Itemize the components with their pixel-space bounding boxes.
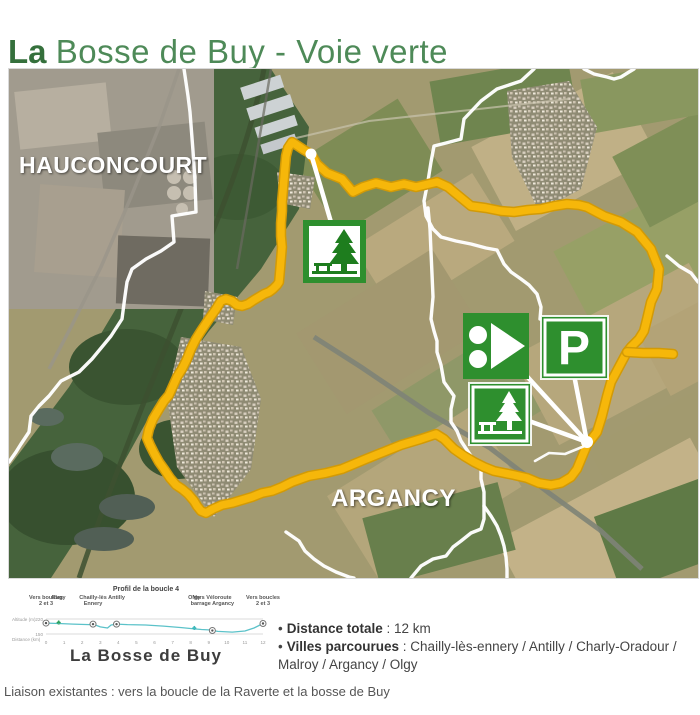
profile-xlabel: Distance (km)	[12, 637, 41, 642]
waypoint-label: Vers boucles 2 et 3	[235, 595, 291, 608]
distance-label: Distance totale	[287, 621, 383, 636]
industrial-zone	[9, 69, 214, 309]
profile-xtick: 6	[153, 640, 156, 645]
bullet-icon: •	[278, 639, 283, 654]
profile-xtick: 9	[208, 640, 211, 645]
picnic-area-icon	[305, 222, 365, 282]
page-title-prefix: La	[8, 33, 47, 70]
route-map-svg: HAUCONCOURT ARGANCY	[9, 69, 698, 578]
profile-xtick: 7	[171, 640, 174, 645]
lake	[74, 527, 134, 551]
profile-waypoint-labels: Vers boucles 2 et 3RugyChailly-lès Enner…	[10, 595, 282, 611]
waypoint-marker-dot	[45, 622, 47, 624]
profile-xtick: 12	[260, 640, 266, 645]
picnic-area-icon	[469, 383, 531, 445]
parking-icon: P	[541, 316, 608, 379]
page-root: LaBosse de Buy - Voie verte	[0, 0, 700, 715]
route-map-image: HAUCONCOURT ARGANCY	[8, 68, 699, 579]
profile-xtick: 1	[63, 640, 66, 645]
distance-value: : 12 km	[383, 621, 431, 636]
liaison-note: Liaison existantes : vers la boucle de l…	[4, 684, 390, 699]
profile-xtick: 0	[45, 640, 48, 645]
page-title: LaBosse de Buy - Voie verte	[8, 34, 448, 70]
villes-label: Villes parcourues	[287, 639, 399, 654]
profile-xtick: 10	[224, 640, 230, 645]
profile-xtick: 5	[135, 640, 138, 645]
page-title-rest: Bosse de Buy - Voie verte	[56, 33, 448, 70]
detail-villes: •Villes parcourues : Chailly-lès-ennery …	[278, 638, 694, 674]
waypoint-label: Antilly	[89, 595, 145, 601]
profile-xtick: 11	[243, 640, 248, 645]
tree-marker-icon: ♣	[56, 620, 61, 627]
town-marker-icon: ♣	[192, 625, 197, 632]
profile-xtick: 4	[117, 640, 120, 645]
waypoint-marker-dot	[92, 623, 94, 625]
waypoint-label: Vers Véloroute barrage Argancy	[184, 595, 240, 608]
route-start-icon	[463, 313, 529, 379]
profile-xtick: 2	[81, 640, 84, 645]
satellite-terrain: HAUCONCOURT ARGANCY	[9, 69, 698, 578]
elevation-line	[46, 623, 263, 632]
route-end-dot	[581, 436, 593, 448]
bullet-icon: •	[278, 621, 283, 636]
route-start-dot	[306, 149, 317, 160]
profile-ylabel: Altitude (m)	[12, 617, 36, 622]
route-details: •Distance totale : 12 km •Villes parcour…	[278, 620, 694, 673]
profile-title: Profil de la boucle 4	[10, 586, 282, 593]
waypoint-marker-dot	[115, 623, 117, 625]
town-label-argancy: ARGANCY	[331, 485, 456, 512]
profile-caption: La Bosse de Buy	[10, 646, 282, 666]
town-label-hauconcourt: HAUCONCOURT	[19, 152, 207, 178]
profile-xtick: 3	[99, 640, 102, 645]
profile-chart: Altitude (m) Distance (km) 220 150 01234…	[10, 611, 282, 646]
waypoint-marker-dot	[211, 629, 213, 631]
parking-letter: P	[558, 322, 590, 375]
profile-ytick-top: 220	[35, 617, 43, 622]
profile-ytick-bottom: 150	[35, 632, 43, 637]
elevation-profile: Profil de la boucle 4 Vers boucles 2 et …	[10, 584, 282, 674]
detail-distance: •Distance totale : 12 km	[278, 620, 694, 638]
lake	[99, 494, 155, 520]
lake	[51, 443, 103, 471]
waypoint-marker-dot	[262, 622, 264, 624]
profile-xtick: 8	[189, 640, 192, 645]
